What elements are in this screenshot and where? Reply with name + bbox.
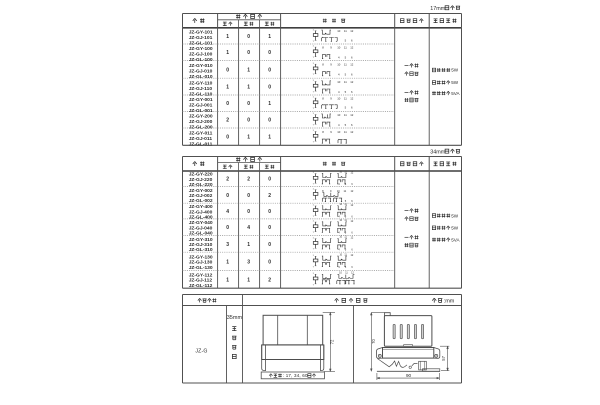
svg-text:JZ-GL-001: JZ-GL-001 bbox=[189, 108, 213, 114]
svg-text:5W: 5W bbox=[451, 213, 459, 218]
svg-text:1: 1 bbox=[268, 135, 271, 141]
svg-text:4: 4 bbox=[226, 209, 229, 215]
svg-text:0: 0 bbox=[226, 225, 229, 231]
svg-text:4: 4 bbox=[247, 225, 250, 231]
svg-text:1: 1 bbox=[247, 85, 250, 91]
svg-text:JZ-GJ-220: JZ-GJ-220 bbox=[189, 177, 213, 183]
svg-text:1: 1 bbox=[226, 85, 229, 91]
svg-text:12: 12 bbox=[350, 29, 354, 33]
svg-text:10: 10 bbox=[337, 80, 341, 84]
svg-text:17mm: 17mm bbox=[430, 6, 445, 12]
svg-text:5W: 5W bbox=[451, 80, 459, 85]
svg-text:0: 0 bbox=[268, 242, 271, 248]
svg-text:JZ-GL-100: JZ-GL-100 bbox=[189, 57, 213, 63]
svg-text:JZ-GY-002: JZ-GY-002 bbox=[189, 188, 213, 194]
svg-text:2: 2 bbox=[247, 177, 250, 183]
svg-text:0: 0 bbox=[247, 34, 250, 40]
svg-text:11: 11 bbox=[344, 46, 347, 50]
svg-text:0: 0 bbox=[247, 101, 250, 107]
svg-text:11: 11 bbox=[344, 97, 347, 101]
svg-text:0: 0 bbox=[247, 193, 250, 199]
svg-text:1: 1 bbox=[247, 242, 250, 248]
svg-text:1: 1 bbox=[247, 277, 250, 283]
svg-text:JZ-GJ-010: JZ-GJ-010 bbox=[189, 69, 213, 75]
svg-text:JZ-GY-400: JZ-GY-400 bbox=[189, 204, 213, 210]
svg-text:12: 12 bbox=[350, 63, 354, 67]
svg-text:5VA: 5VA bbox=[451, 91, 460, 96]
svg-text:3: 3 bbox=[247, 259, 250, 265]
svg-text:1: 1 bbox=[226, 277, 229, 283]
svg-text:11: 11 bbox=[344, 80, 347, 84]
svg-text:10: 10 bbox=[337, 97, 341, 101]
svg-text:90: 90 bbox=[406, 373, 412, 378]
svg-text:10: 10 bbox=[337, 63, 341, 67]
svg-text:: 17, 34, 60: : 17, 34, 60 bbox=[283, 373, 308, 378]
svg-text:11: 11 bbox=[344, 130, 347, 134]
svg-text:12: 12 bbox=[350, 46, 354, 50]
svg-text:JZ-GJ-002: JZ-GJ-002 bbox=[189, 193, 213, 199]
svg-text:0: 0 bbox=[268, 118, 271, 124]
svg-text:0: 0 bbox=[247, 118, 250, 124]
svg-text:JZ-GY-110: JZ-GY-110 bbox=[189, 80, 213, 86]
svg-text:1: 1 bbox=[268, 101, 271, 107]
svg-text:JZ-GL-011: JZ-GL-011 bbox=[189, 141, 213, 147]
svg-text:11: 11 bbox=[344, 113, 347, 117]
svg-text:JZ-GL-310: JZ-GL-310 bbox=[189, 247, 213, 253]
svg-text:JZ-GL-130: JZ-GL-130 bbox=[189, 265, 213, 271]
svg-text:JZ-GL-200: JZ-GL-200 bbox=[189, 124, 213, 130]
svg-text:11: 11 bbox=[344, 29, 347, 33]
svg-text:3: 3 bbox=[226, 242, 229, 248]
svg-text:JZ-GJ-112: JZ-GJ-112 bbox=[189, 278, 213, 284]
svg-text:JZ-GY-200: JZ-GY-200 bbox=[189, 113, 213, 119]
svg-text:JZ-GL-002: JZ-GL-002 bbox=[189, 198, 213, 204]
svg-text:1: 1 bbox=[268, 34, 271, 40]
svg-text:JZ-GJ-040: JZ-GJ-040 bbox=[189, 225, 213, 231]
svg-text:JZ-GY-220: JZ-GY-220 bbox=[189, 172, 213, 178]
svg-text:0: 0 bbox=[268, 177, 271, 183]
svg-text:JZ-GJ-011: JZ-GJ-011 bbox=[189, 136, 213, 142]
svg-text:JZ-GL-112: JZ-GL-112 bbox=[189, 283, 213, 289]
svg-text:0: 0 bbox=[226, 135, 229, 141]
svg-text:JZ-GY-130: JZ-GY-130 bbox=[189, 254, 213, 260]
svg-text:JZ-GJ-310: JZ-GJ-310 bbox=[189, 242, 213, 248]
svg-text:JZ-GJ-130: JZ-GJ-130 bbox=[189, 260, 213, 266]
svg-text:70: 70 bbox=[371, 339, 376, 344]
svg-text:0: 0 bbox=[268, 209, 271, 215]
svg-text:JZ-GY-010: JZ-GY-010 bbox=[189, 63, 213, 69]
svg-text:1: 1 bbox=[226, 50, 229, 56]
svg-text:JZ-GY-100: JZ-GY-100 bbox=[189, 46, 213, 52]
svg-text:1: 1 bbox=[226, 259, 229, 265]
svg-text:JZ-GL-101: JZ-GL-101 bbox=[189, 41, 213, 47]
svg-text:12: 12 bbox=[350, 97, 354, 101]
svg-text:35mm: 35mm bbox=[227, 315, 243, 321]
svg-text:JZ-GL-040: JZ-GL-040 bbox=[189, 231, 213, 237]
svg-text:JZ-GJ-110: JZ-GJ-110 bbox=[189, 86, 213, 92]
svg-text:2: 2 bbox=[268, 277, 271, 283]
svg-text:JZ-GJ-001: JZ-GJ-001 bbox=[189, 102, 213, 108]
svg-text:1: 1 bbox=[226, 34, 229, 40]
svg-text:10: 10 bbox=[337, 113, 341, 117]
svg-text:JZ-GY-040: JZ-GY-040 bbox=[189, 220, 213, 226]
svg-text:2: 2 bbox=[226, 177, 229, 183]
svg-text:JZ-GJ-200: JZ-GJ-200 bbox=[189, 119, 213, 125]
svg-text:JZ-GY-001: JZ-GY-001 bbox=[189, 97, 213, 103]
svg-text:JZ-GL-220: JZ-GL-220 bbox=[189, 182, 213, 188]
svg-text:JZ-GJ-400: JZ-GJ-400 bbox=[189, 209, 213, 215]
svg-text:JZ-GY-310: JZ-GY-310 bbox=[189, 237, 213, 243]
svg-text:JZ-GL-010: JZ-GL-010 bbox=[189, 74, 213, 80]
svg-text:2: 2 bbox=[226, 118, 229, 124]
svg-text:12: 12 bbox=[350, 113, 354, 117]
svg-text:JZ-GJ-101: JZ-GJ-101 bbox=[189, 35, 213, 41]
svg-text:12: 12 bbox=[350, 130, 354, 134]
svg-text:JZ-GL-400: JZ-GL-400 bbox=[189, 214, 213, 220]
svg-text:5VA: 5VA bbox=[451, 237, 460, 242]
svg-text:0: 0 bbox=[226, 67, 229, 73]
svg-text:10: 10 bbox=[337, 29, 341, 33]
svg-text:0: 0 bbox=[247, 50, 250, 56]
svg-text:11: 11 bbox=[344, 63, 347, 67]
svg-text:34mm: 34mm bbox=[430, 150, 445, 156]
svg-text:JZ-G: JZ-G bbox=[195, 348, 207, 354]
svg-text:12: 12 bbox=[350, 80, 354, 84]
svg-text:2: 2 bbox=[268, 193, 271, 199]
svg-text:0: 0 bbox=[268, 85, 271, 91]
svg-text:5W: 5W bbox=[451, 68, 459, 73]
svg-text:10: 10 bbox=[337, 46, 341, 50]
svg-text:JZ-GY-101: JZ-GY-101 bbox=[189, 30, 213, 36]
svg-text:JZ-GY-011: JZ-GY-011 bbox=[189, 130, 213, 136]
svg-text:10: 10 bbox=[337, 130, 341, 134]
svg-text:0: 0 bbox=[226, 193, 229, 199]
svg-text:0: 0 bbox=[268, 67, 271, 73]
svg-text:5W: 5W bbox=[451, 226, 459, 231]
svg-text:1: 1 bbox=[247, 135, 250, 141]
svg-text:0: 0 bbox=[247, 209, 250, 215]
svg-text:0: 0 bbox=[268, 259, 271, 265]
svg-text:JZ-GL-110: JZ-GL-110 bbox=[189, 91, 213, 97]
svg-text:JZ-GJ-100: JZ-GJ-100 bbox=[189, 51, 213, 57]
svg-text::mm: :mm bbox=[444, 298, 455, 304]
svg-text:1: 1 bbox=[247, 67, 250, 73]
svg-text:0: 0 bbox=[268, 50, 271, 56]
svg-text:0: 0 bbox=[226, 101, 229, 107]
svg-text:0: 0 bbox=[268, 225, 271, 231]
svg-text:72: 72 bbox=[330, 339, 335, 344]
svg-text:57: 57 bbox=[441, 355, 446, 360]
svg-text:JZ-GY-112: JZ-GY-112 bbox=[189, 272, 213, 278]
